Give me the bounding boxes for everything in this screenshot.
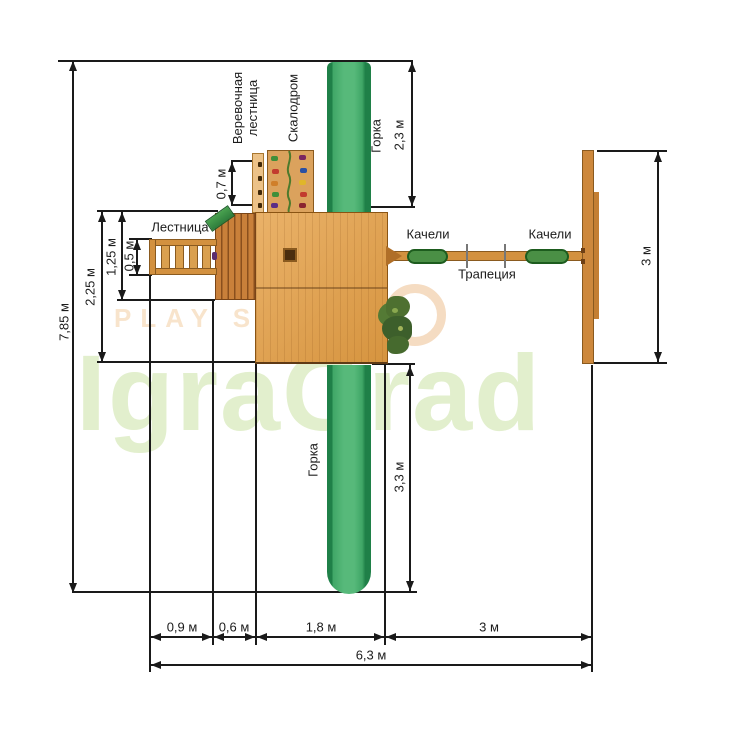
climbing-hold-icon [271, 181, 278, 186]
climbing-hold-icon [271, 203, 278, 208]
dim-arrow-icon [581, 633, 591, 641]
ext-line-deck-bottom [97, 361, 256, 363]
slide-top [327, 62, 371, 213]
dim-arrow-icon [406, 366, 414, 376]
dim-label-slide-bottom: 3,3 м [392, 462, 407, 493]
label-swing-right: Качели [529, 227, 572, 242]
tick-slide-top-bottom [367, 206, 415, 208]
dim-label-3m-right: 3 м [639, 246, 654, 266]
dim-label-0-9: 0,9 м [167, 620, 198, 635]
dim-line-3-3 [409, 365, 411, 592]
dim-label-total-width: 6,3 м [356, 648, 387, 663]
rope-ladder-rung-icon [258, 203, 262, 208]
label-slide-bottom: Горка [306, 443, 321, 477]
dim-label-2-25: 2,25 м [83, 268, 98, 306]
label-swing-left: Качели [407, 227, 450, 242]
ext-line-x592 [591, 365, 593, 672]
a-frame-strip [594, 192, 599, 319]
dim-arrow-icon [151, 633, 161, 641]
climbing-hold-icon [299, 180, 306, 185]
bush-blob [386, 296, 410, 318]
climbing-hold-icon [300, 168, 307, 173]
dim-arrow-icon [98, 212, 106, 222]
dim-row2-line [150, 664, 593, 666]
label-climbing-wall: Скалодром [286, 74, 301, 142]
swing-seat-right [525, 249, 569, 264]
dim-arrow-icon [69, 583, 77, 593]
platform-deck [255, 212, 388, 364]
dim-arrow-icon [581, 661, 591, 669]
dim-line-2-3 [411, 61, 413, 207]
dim-arrow-icon [408, 196, 416, 206]
climbing-hold-icon [272, 169, 279, 174]
ladder-end-cap [149, 239, 156, 275]
swing-seat-left [407, 249, 448, 264]
label-ladder: Лестница [151, 220, 208, 235]
ext-line-fence-bottom [117, 299, 215, 301]
dim-line-2-25 [101, 211, 103, 363]
dim-label-1-25: 1,25 м [104, 238, 119, 276]
bush-speck [392, 308, 398, 313]
dim-label-0-5: 0,5 м [122, 241, 137, 272]
climbing-hold-icon [300, 192, 307, 197]
ladder-rail-bottom [149, 268, 217, 275]
trapeze-rope-icon [466, 244, 468, 268]
ext-line-x256 [255, 363, 257, 645]
bush-speck [398, 326, 403, 331]
dim-arrow-icon [408, 62, 416, 72]
dim-arrow-icon [69, 61, 77, 71]
dim-label-1-8: 1,8 м [306, 620, 337, 635]
beam-bracket-icon [386, 246, 402, 266]
dim-arrow-icon [202, 633, 212, 641]
dim-arrow-icon [406, 581, 414, 591]
dim-arrow-icon [118, 212, 126, 222]
dim-line-3m-right [657, 151, 659, 363]
dim-label-0-6: 0,6 м [219, 620, 250, 635]
label-trapeze: Трапеция [458, 267, 516, 282]
diagram-canvas: IgraGrad PLAY SYS [0, 0, 734, 750]
ext-line-platform-top [97, 210, 218, 212]
dim-arrow-icon [151, 661, 161, 669]
dim-label-slide-top: 2,3 м [392, 120, 407, 151]
dim-arrow-icon [118, 290, 126, 300]
climbing-hold-icon [271, 156, 278, 161]
dim-arrow-icon [654, 152, 662, 162]
dim-arrow-icon [386, 633, 396, 641]
dim-arrow-icon [374, 633, 384, 641]
dim-arrow-icon [228, 195, 236, 205]
ground-line [73, 591, 417, 593]
ext-line-x385 [384, 363, 386, 645]
slide-bottom [327, 365, 371, 594]
dim-arrow-icon [228, 162, 236, 172]
tick-frame-bottom [590, 362, 667, 364]
label-rope-ladder: Веревочная лестница [230, 72, 260, 144]
balcony-fence [215, 213, 256, 300]
climbing-rope-icon [284, 151, 294, 212]
dim-label-0-7: 0,7 м [214, 169, 229, 200]
bush [378, 296, 412, 354]
dim-arrow-icon [257, 633, 267, 641]
a-frame-notch-icon [581, 248, 585, 253]
dim-arrow-icon [654, 352, 662, 362]
dim-arrow-icon [98, 352, 106, 362]
rope-ladder-rung-icon [258, 190, 262, 195]
dim-label-total-height: 7,85 м [57, 303, 72, 341]
fence-handle-icon [212, 252, 217, 260]
ext-line-x150 [149, 275, 151, 672]
dim-label-3m-bottom: 3 м [479, 620, 499, 635]
bush-blob [387, 336, 409, 354]
label-slide-top: Горка [369, 119, 384, 153]
climbing-hold-icon [272, 192, 279, 197]
climbing-hold-icon [299, 203, 306, 208]
a-frame-notch-icon [581, 259, 585, 264]
roof-finial [283, 248, 297, 262]
rope-ladder-rung-icon [258, 162, 262, 167]
deck-seam [256, 287, 387, 289]
ext-line-x213 [212, 300, 214, 645]
swing-a-frame [582, 150, 594, 364]
ladder-rail-top [149, 239, 217, 246]
rope-ladder-rung-icon [258, 176, 262, 181]
climbing-hold-icon [299, 155, 306, 160]
trapeze-rope-icon [504, 244, 506, 268]
dim-line-total-height [72, 60, 74, 593]
